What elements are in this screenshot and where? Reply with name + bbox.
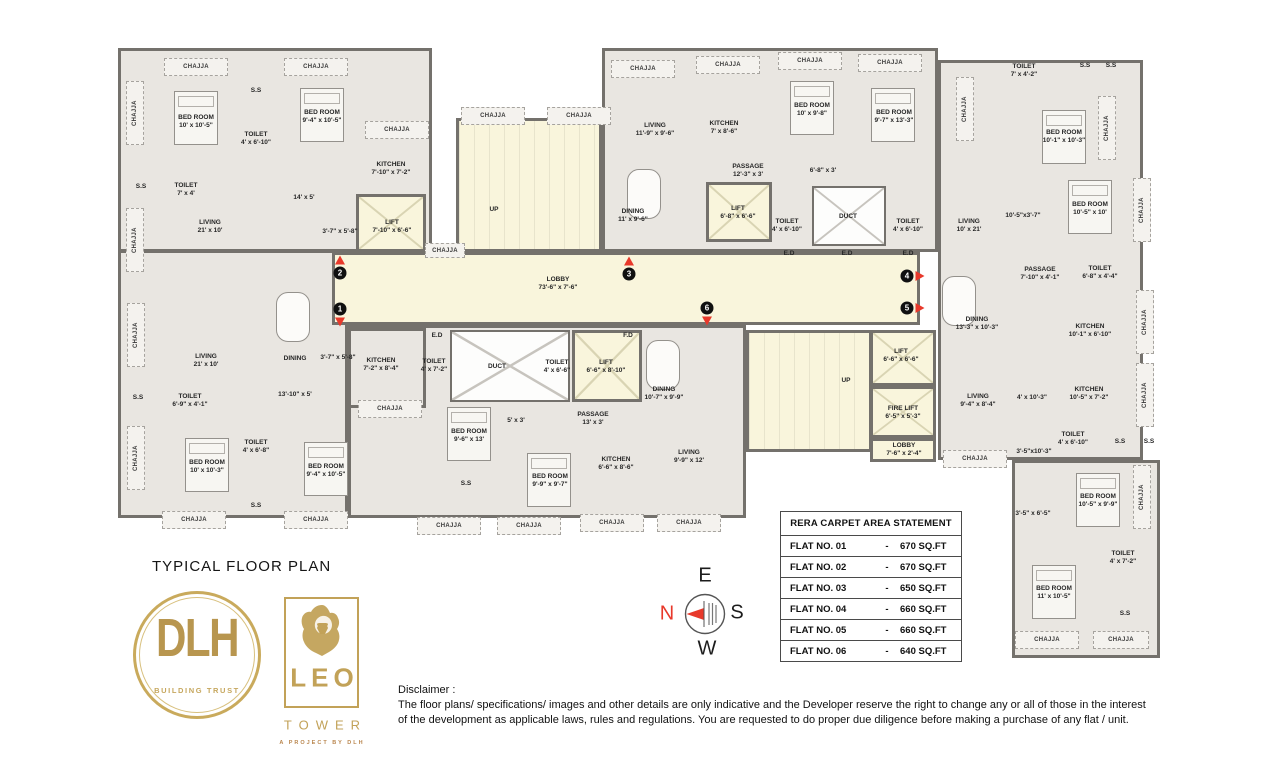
ss-label: S.S xyxy=(133,394,143,402)
room-label: BED ROOM9'-9" x 9'-7" xyxy=(532,473,568,489)
chajja-strip: CHAJJA xyxy=(417,517,481,535)
room-label: LIFT7'-10" x 6'-6" xyxy=(373,219,412,235)
flat-no-cell: FLAT NO. 05 xyxy=(781,625,874,636)
lion-icon xyxy=(297,603,347,659)
chajja-strip: CHAJJA xyxy=(1133,465,1151,529)
chajja-strip: CHAJJA xyxy=(358,400,422,418)
room-label: LIVING11'-9" x 9'-6" xyxy=(636,122,675,138)
table-row: FLAT NO. 04 - 660 SQ.FT xyxy=(781,599,961,620)
room-label: LOBBY7'-6" x 2'-4" xyxy=(886,442,921,458)
area-cell: 660 SQ.FT xyxy=(900,625,961,636)
table-row: FLAT NO. 01 - 670 SQ.FT xyxy=(781,536,961,557)
chajja-strip: CHAJJA xyxy=(497,517,561,535)
chajja-strip: CHAJJA xyxy=(164,58,228,76)
room-label: BED ROOM9'-6" x 13' xyxy=(451,428,487,444)
area-cell: 640 SQ.FT xyxy=(900,646,961,657)
dim-label: 3'-5"x10'-3" xyxy=(1016,448,1051,456)
chajja-strip: CHAJJA xyxy=(127,426,145,490)
room-label: TOILET4' x 7'-2" xyxy=(421,358,447,374)
area-cell: 670 SQ.FT xyxy=(900,541,961,552)
floor-plan-page: { "title": "TYPICAL FLOOR PLAN", "plan":… xyxy=(0,0,1280,764)
compass-rose-icon xyxy=(684,593,726,635)
room-label: PASSAGE13' x 3' xyxy=(577,411,608,427)
dining-table xyxy=(646,340,680,390)
room-label: DINING13'-3" x 10'-3" xyxy=(956,316,999,332)
separator-cell: - xyxy=(874,604,900,615)
area-cell: 670 SQ.FT xyxy=(900,562,961,573)
chajja-strip: CHAJJA xyxy=(858,54,922,72)
flat-no-cell: FLAT NO. 01 xyxy=(781,541,874,552)
separator-cell: - xyxy=(874,625,900,636)
room-label: BED ROOM10' x 10'-5" xyxy=(178,114,214,130)
chajja-strip: CHAJJA xyxy=(778,52,842,70)
compass-north-label: N xyxy=(660,603,674,626)
chajja-strip: CHAJJA xyxy=(956,77,974,141)
ss-label: S.S xyxy=(136,183,146,191)
chajja-strip: CHAJJA xyxy=(611,60,675,78)
table-row: FLAT NO. 03 - 650 SQ.FT xyxy=(781,578,961,599)
leo-logo-sub: TOWER xyxy=(277,718,367,733)
chajja-strip: CHAJJA xyxy=(580,514,644,532)
room-label: LIVING21' x 10' xyxy=(194,353,219,369)
chajja-strip: CHAJJA xyxy=(365,121,429,139)
duct-label: DUCT xyxy=(488,363,506,371)
disclaimer-text: The floor plans/ specifications/ images … xyxy=(398,699,1146,726)
room-label: BED ROOM11' x 10'-5" xyxy=(1036,585,1072,601)
chajja-strip: CHAJJA xyxy=(126,208,144,272)
dlh-logo-text: DLH xyxy=(156,607,238,669)
ed-label: E.D xyxy=(432,332,443,340)
ss-label: S.S xyxy=(1144,438,1154,446)
room-label: KITCHEN10'-5" x 7'-2" xyxy=(1070,386,1109,402)
compass-south-label: S xyxy=(730,602,743,625)
dim-label: 3'-7" x 5'-8" xyxy=(320,354,355,362)
flat-marker-6: 6 xyxy=(701,302,714,315)
room-label: LIVING10' x 21' xyxy=(957,218,982,234)
stairs-up-label: UP xyxy=(489,206,498,214)
flat-no-cell: FLAT NO. 04 xyxy=(781,604,874,615)
area-cell: 660 SQ.FT xyxy=(900,604,961,615)
stairs-up-label: UP xyxy=(841,377,850,385)
chajja-strip: CHAJJA xyxy=(1136,363,1154,427)
ss-label: S.S xyxy=(1120,610,1130,618)
chajja-strip: CHAJJA xyxy=(425,243,465,258)
chajja-strip: CHAJJA xyxy=(162,511,226,529)
ed-label: E.D xyxy=(903,250,914,258)
dlh-logo: DLH BUILDING TRUST xyxy=(133,591,261,719)
room-label: DINING10'-7" x 9'-9" xyxy=(645,386,684,402)
room-label: BED ROOM9'-4" x 10'-5" xyxy=(307,463,346,479)
staircase-bottom xyxy=(746,330,872,452)
flat-marker-6-arrow xyxy=(702,317,712,326)
chajja-strip: CHAJJA xyxy=(127,303,145,367)
room-label: LIVING9'-9" x 12' xyxy=(674,449,704,465)
compass-east-label: E xyxy=(698,565,711,588)
flat-marker-4-arrow xyxy=(916,271,925,281)
chajja-strip: CHAJJA xyxy=(284,511,348,529)
room-label: BED ROOM10'-5" x 9'-9" xyxy=(1079,493,1118,509)
chajja-strip: CHAJJA xyxy=(696,56,760,74)
ss-label: S.S xyxy=(461,480,471,488)
dim-label: 14' x 5' xyxy=(293,194,314,202)
flat-marker-3-arrow xyxy=(624,257,634,266)
table-row: FLAT NO. 06 - 640 SQ.FT xyxy=(781,641,961,661)
staircase-top xyxy=(456,118,602,252)
dim-label: 3'-5" x 6'-5" xyxy=(1015,510,1050,518)
flat-no-cell: FLAT NO. 03 xyxy=(781,583,874,594)
chajja-strip: CHAJJA xyxy=(1136,290,1154,354)
room-label: TOILET4' x 7'-2" xyxy=(1110,550,1136,566)
room-label: LIFT6'-8" x 6'-6" xyxy=(720,205,755,221)
flat-marker-5: 5 xyxy=(901,302,914,315)
ss-label: S.S xyxy=(1106,62,1116,70)
dim-label: 5' x 3' xyxy=(507,417,525,425)
room-label: LIFT6'-6" x 6'-6" xyxy=(883,348,918,364)
disclaimer: Disclaimer : The floor plans/ specificat… xyxy=(398,683,1146,728)
room-label: KITCHEN6'-6" x 8'-6" xyxy=(598,456,633,472)
room-label: KITCHEN10'-1" x 6'-10" xyxy=(1069,323,1112,339)
room-label: KITCHEN7' x 8'-6" xyxy=(710,120,739,136)
leo-logo-text: LEO xyxy=(285,663,358,694)
lobby-label: LOBBY73'-6" x 7'-6" xyxy=(539,276,578,292)
separator-cell: - xyxy=(874,562,900,573)
ed-label: E.D xyxy=(842,250,853,258)
chajja-strip: CHAJJA xyxy=(657,514,721,532)
separator-cell: - xyxy=(874,583,900,594)
room-label: TOILET4' x 6'-8" xyxy=(243,439,269,455)
room-label: FIRE LIFT6'-5" x 5'-3" xyxy=(885,405,920,421)
room-label: BED ROOM10'-1" x 10'-3" xyxy=(1043,129,1086,145)
room-label: LIFT6'-6" x 8'-10" xyxy=(587,359,626,375)
ss-label: S.S xyxy=(251,87,261,95)
chajja-strip: CHAJJA xyxy=(943,450,1007,468)
leo-logo-tagline: A PROJECT BY DLH xyxy=(279,740,364,746)
flat-no-cell: FLAT NO. 02 xyxy=(781,562,874,573)
disclaimer-label: Disclaimer : xyxy=(398,683,1146,698)
dlh-logo-tagline: BUILDING TRUST xyxy=(154,686,240,695)
chajja-strip: CHAJJA xyxy=(461,107,525,125)
chajja-strip: CHAJJA xyxy=(1093,631,1149,649)
rera-table-header: RERA CARPET AREA STATEMENT xyxy=(781,512,961,536)
ed-label: E.D xyxy=(784,250,795,258)
ss-label: S.S xyxy=(1080,62,1090,70)
table-row: FLAT NO. 02 - 670 SQ.FT xyxy=(781,557,961,578)
flat-no-cell: FLAT NO. 06 xyxy=(781,646,874,657)
room-label: PASSAGE7'-10" x 4'-1" xyxy=(1021,266,1060,282)
flat-marker-2: 2 xyxy=(334,267,347,280)
flat-marker-2-arrow xyxy=(335,256,345,265)
dim-label: 3'-7" x 5'-8" xyxy=(322,228,357,236)
flat-marker-3: 3 xyxy=(623,268,636,281)
separator-cell: - xyxy=(874,541,900,552)
flat-marker-1-arrow xyxy=(335,318,345,327)
chajja-strip: CHAJJA xyxy=(126,81,144,145)
room-label: TOILET6'-9" x 4'-1" xyxy=(172,393,207,409)
fd-label: F.D xyxy=(623,332,633,340)
room-label: TOILET7' x 4'-2" xyxy=(1011,63,1037,79)
room-label: LIVING21' x 10' xyxy=(198,219,223,235)
room-label: KITCHEN7'-2" x 8'-4" xyxy=(363,357,398,373)
separator-cell: - xyxy=(874,646,900,657)
ss-label: S.S xyxy=(251,502,261,510)
dining-table xyxy=(276,292,310,342)
compass-west-label: W xyxy=(698,638,717,661)
room-label: TOILET7' x 4' xyxy=(175,182,198,198)
dining-label: DINING xyxy=(284,355,307,363)
ss-label: S.S xyxy=(1115,438,1125,446)
flat-marker-4: 4 xyxy=(901,270,914,283)
dim-label: 6'-8" x 3' xyxy=(810,167,836,175)
chajja-strip: CHAJJA xyxy=(1098,96,1116,160)
chajja-strip: CHAJJA xyxy=(1015,631,1079,649)
room-label: TOILET4' x 6'-10" xyxy=(241,131,271,147)
room-label: TOILET4' x 6'-6" xyxy=(544,359,570,375)
flat-marker-1: 1 xyxy=(334,303,347,316)
room-label: BED ROOM9'-7" x 13'-3" xyxy=(875,109,914,125)
room-label: BED ROOM10'-5" x 10' xyxy=(1072,201,1108,217)
room-label: BED ROOM9'-4" x 10'-5" xyxy=(303,109,342,125)
dim-label: 13'-10" x 5' xyxy=(278,391,312,399)
room-label: TOILET6'-8" x 4'-4" xyxy=(1082,265,1117,281)
room-label: TOILET4' x 6'-10" xyxy=(772,218,802,234)
room-label: KITCHEN7'-10" x 7'-2" xyxy=(372,161,411,177)
chajja-strip: CHAJJA xyxy=(284,58,348,76)
rera-carpet-area-table: RERA CARPET AREA STATEMENT FLAT NO. 01 -… xyxy=(780,511,962,662)
room-label: PASSAGE12'-3" x 3' xyxy=(732,163,763,179)
room-label: LIVING9'-4" x 8'-4" xyxy=(960,393,995,409)
dim-label: 4' x 10'-3" xyxy=(1017,394,1047,402)
chajja-strip: CHAJJA xyxy=(547,107,611,125)
page-title: TYPICAL FLOOR PLAN xyxy=(152,558,331,575)
room-label: TOILET4' x 6'-10" xyxy=(1058,431,1088,447)
chajja-strip: CHAJJA xyxy=(1133,178,1151,242)
dim-label: 10'-5"x3'-7" xyxy=(1005,212,1040,220)
room-label: BED ROOM10' x 10'-3" xyxy=(189,459,225,475)
table-row: FLAT NO. 05 - 660 SQ.FT xyxy=(781,620,961,641)
duct-label: DUCT xyxy=(839,213,857,221)
room-label: BED ROOM10' x 9'-8" xyxy=(794,102,830,118)
area-cell: 650 SQ.FT xyxy=(900,583,961,594)
room-label: DINING11' x 9'-6" xyxy=(618,208,648,224)
room-label: TOILET4' x 6'-10" xyxy=(893,218,923,234)
flat-marker-5-arrow xyxy=(916,303,925,313)
